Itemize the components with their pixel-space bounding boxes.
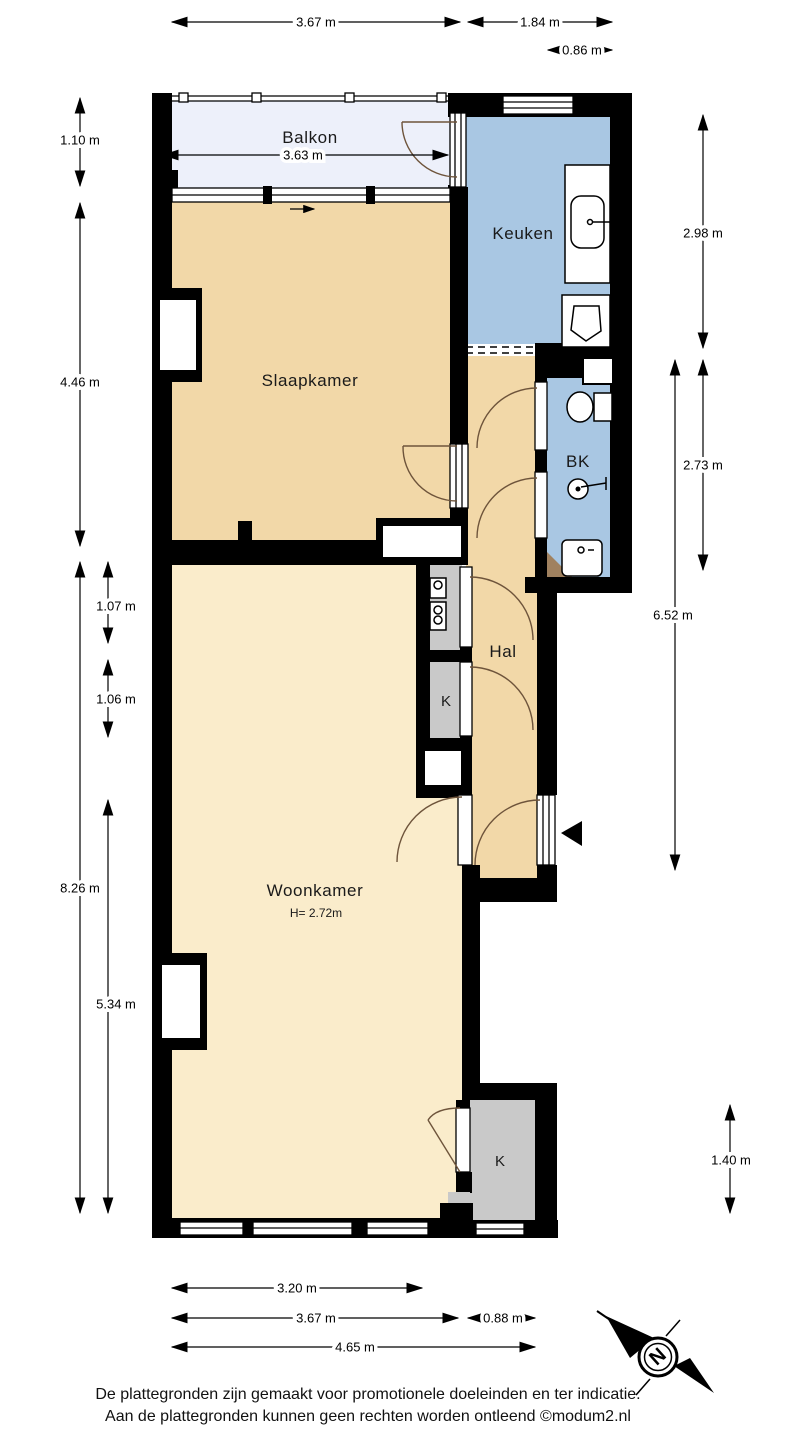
dim-label-top-1: 3.67 m xyxy=(296,15,336,30)
footer-line-1: De plattegronden zijn gemaakt voor promo… xyxy=(95,1386,640,1403)
railing-post xyxy=(437,93,446,102)
wall-stub-divider xyxy=(238,521,252,543)
living-window-niche xyxy=(162,965,200,1038)
wall-meter-closet-divider xyxy=(416,650,462,662)
wall-bathroom-bottom xyxy=(525,577,632,593)
dim-label-right-3: 6.52 m xyxy=(653,608,693,623)
floor-plan-page: 3.67 m 1.84 m 0.86 m 3.63 m 1.10 m 4.46 … xyxy=(0,0,810,1440)
dim-label-left-6: 5.34 m xyxy=(96,997,136,1012)
closet-bottom-door-frame xyxy=(456,1108,470,1172)
wall-closet-right xyxy=(535,1083,557,1238)
bathroom-door-frame-1 xyxy=(535,382,547,450)
hall-niche xyxy=(424,750,462,786)
dim-label-balcony-width: 3.63 m xyxy=(283,148,323,163)
kitchen-window xyxy=(503,96,573,114)
gray-tab xyxy=(448,1192,470,1203)
front-door-frame xyxy=(537,795,555,865)
meter-door-frame xyxy=(460,567,472,647)
bedroom-window-niche xyxy=(160,300,196,370)
closet-mid-door-frame xyxy=(460,662,472,736)
compass-needle-tail xyxy=(674,1358,714,1393)
label-hal: Hal xyxy=(489,642,516,661)
bathroom-door-frame-2 xyxy=(535,472,547,538)
wall-hall-bathroom-1 xyxy=(535,358,547,382)
kitchen-appliance xyxy=(562,295,610,347)
wall-closet-bottom xyxy=(416,738,462,750)
dashed-strip xyxy=(466,344,537,356)
dim-label-bottom-3: 0.88 m xyxy=(483,1311,523,1326)
label-kast-mid: K xyxy=(441,693,451,710)
railing-post xyxy=(179,93,188,102)
dim-label-left-5: 8.26 m xyxy=(60,881,100,896)
wall-hall-right-above-door xyxy=(537,758,557,795)
footer-line-2: Aan de plattegronden kunnen geen rechten… xyxy=(105,1408,631,1425)
dim-label-left-4: 1.06 m xyxy=(96,692,136,707)
band-mullion xyxy=(263,186,272,204)
dim-label-right-4: 1.40 m xyxy=(711,1153,751,1168)
wall-below-closet-door xyxy=(456,1172,472,1193)
dim-label-top-3: 0.86 m xyxy=(562,43,602,58)
band-mullion xyxy=(366,186,375,204)
compass-rose: N xyxy=(597,1311,714,1395)
toilet-tank xyxy=(594,393,612,421)
bathroom-top-niche xyxy=(583,358,613,384)
wall-hall-bathroom-2 xyxy=(535,450,547,472)
wall-left-outer xyxy=(152,93,172,1238)
label-slaapkamer: Slaapkamer xyxy=(262,371,359,390)
dim-label-left-2: 4.46 m xyxy=(60,375,100,390)
dim-label-bottom-2: 3.67 m xyxy=(296,1311,336,1326)
wall-frame-gap-1 xyxy=(460,647,472,662)
wall-living-right xyxy=(462,900,480,1083)
label-woonkamer-height: H= 2.72m xyxy=(290,906,342,920)
footer: De plattegronden zijn gemaakt voor promo… xyxy=(95,1386,640,1425)
balcony-door-frame xyxy=(450,113,466,187)
label-woonkamer: Woonkamer xyxy=(267,881,364,900)
label-balkon: Balkon xyxy=(282,128,338,147)
dim-label-left-3: 1.07 m xyxy=(96,599,136,614)
dim-label-bottom-1: 3.20 m xyxy=(277,1281,317,1296)
shower-head-center xyxy=(576,487,581,492)
dim-label-bottom-4: 4.65 m xyxy=(335,1340,375,1355)
bedroom-door-frame xyxy=(450,444,468,508)
kitchen-faucet-tip xyxy=(588,220,593,225)
wall-hall-right-below-door xyxy=(537,865,557,880)
compass-tick-ne xyxy=(666,1320,680,1336)
living-door-frame xyxy=(458,795,472,865)
label-bk: BK xyxy=(566,452,590,471)
railing-post xyxy=(345,93,354,102)
wall-closet-step xyxy=(440,1203,473,1218)
wall-hall-bottom xyxy=(476,878,557,902)
toilet-bowl xyxy=(567,392,593,422)
dim-label-top-2: 1.84 m xyxy=(520,15,560,30)
wall-hall-right-upper xyxy=(537,593,557,758)
wall-hall-bathroom-3 xyxy=(535,538,547,578)
floor-plan-drawing: 3.67 m 1.84 m 0.86 m 3.63 m 1.10 m 4.46 … xyxy=(0,0,810,1440)
label-kast-bottom: K xyxy=(495,1153,505,1170)
dim-label-right-1: 2.98 m xyxy=(683,226,723,241)
kitchen-hall-dashed-boundary xyxy=(466,344,537,356)
entrance-arrow-icon xyxy=(561,821,582,846)
divider-closet-niche xyxy=(383,526,461,557)
label-keuken: Keuken xyxy=(492,224,553,243)
washing-machine xyxy=(562,540,602,576)
wall-above-closet-door xyxy=(456,1100,470,1108)
wall-bedroom-right-upper xyxy=(450,187,468,444)
dim-label-right-2: 2.73 m xyxy=(683,458,723,473)
railing-post xyxy=(252,93,261,102)
wall-frame-gap-2 xyxy=(460,736,472,750)
dim-label-left-1: 1.10 m xyxy=(60,133,100,148)
